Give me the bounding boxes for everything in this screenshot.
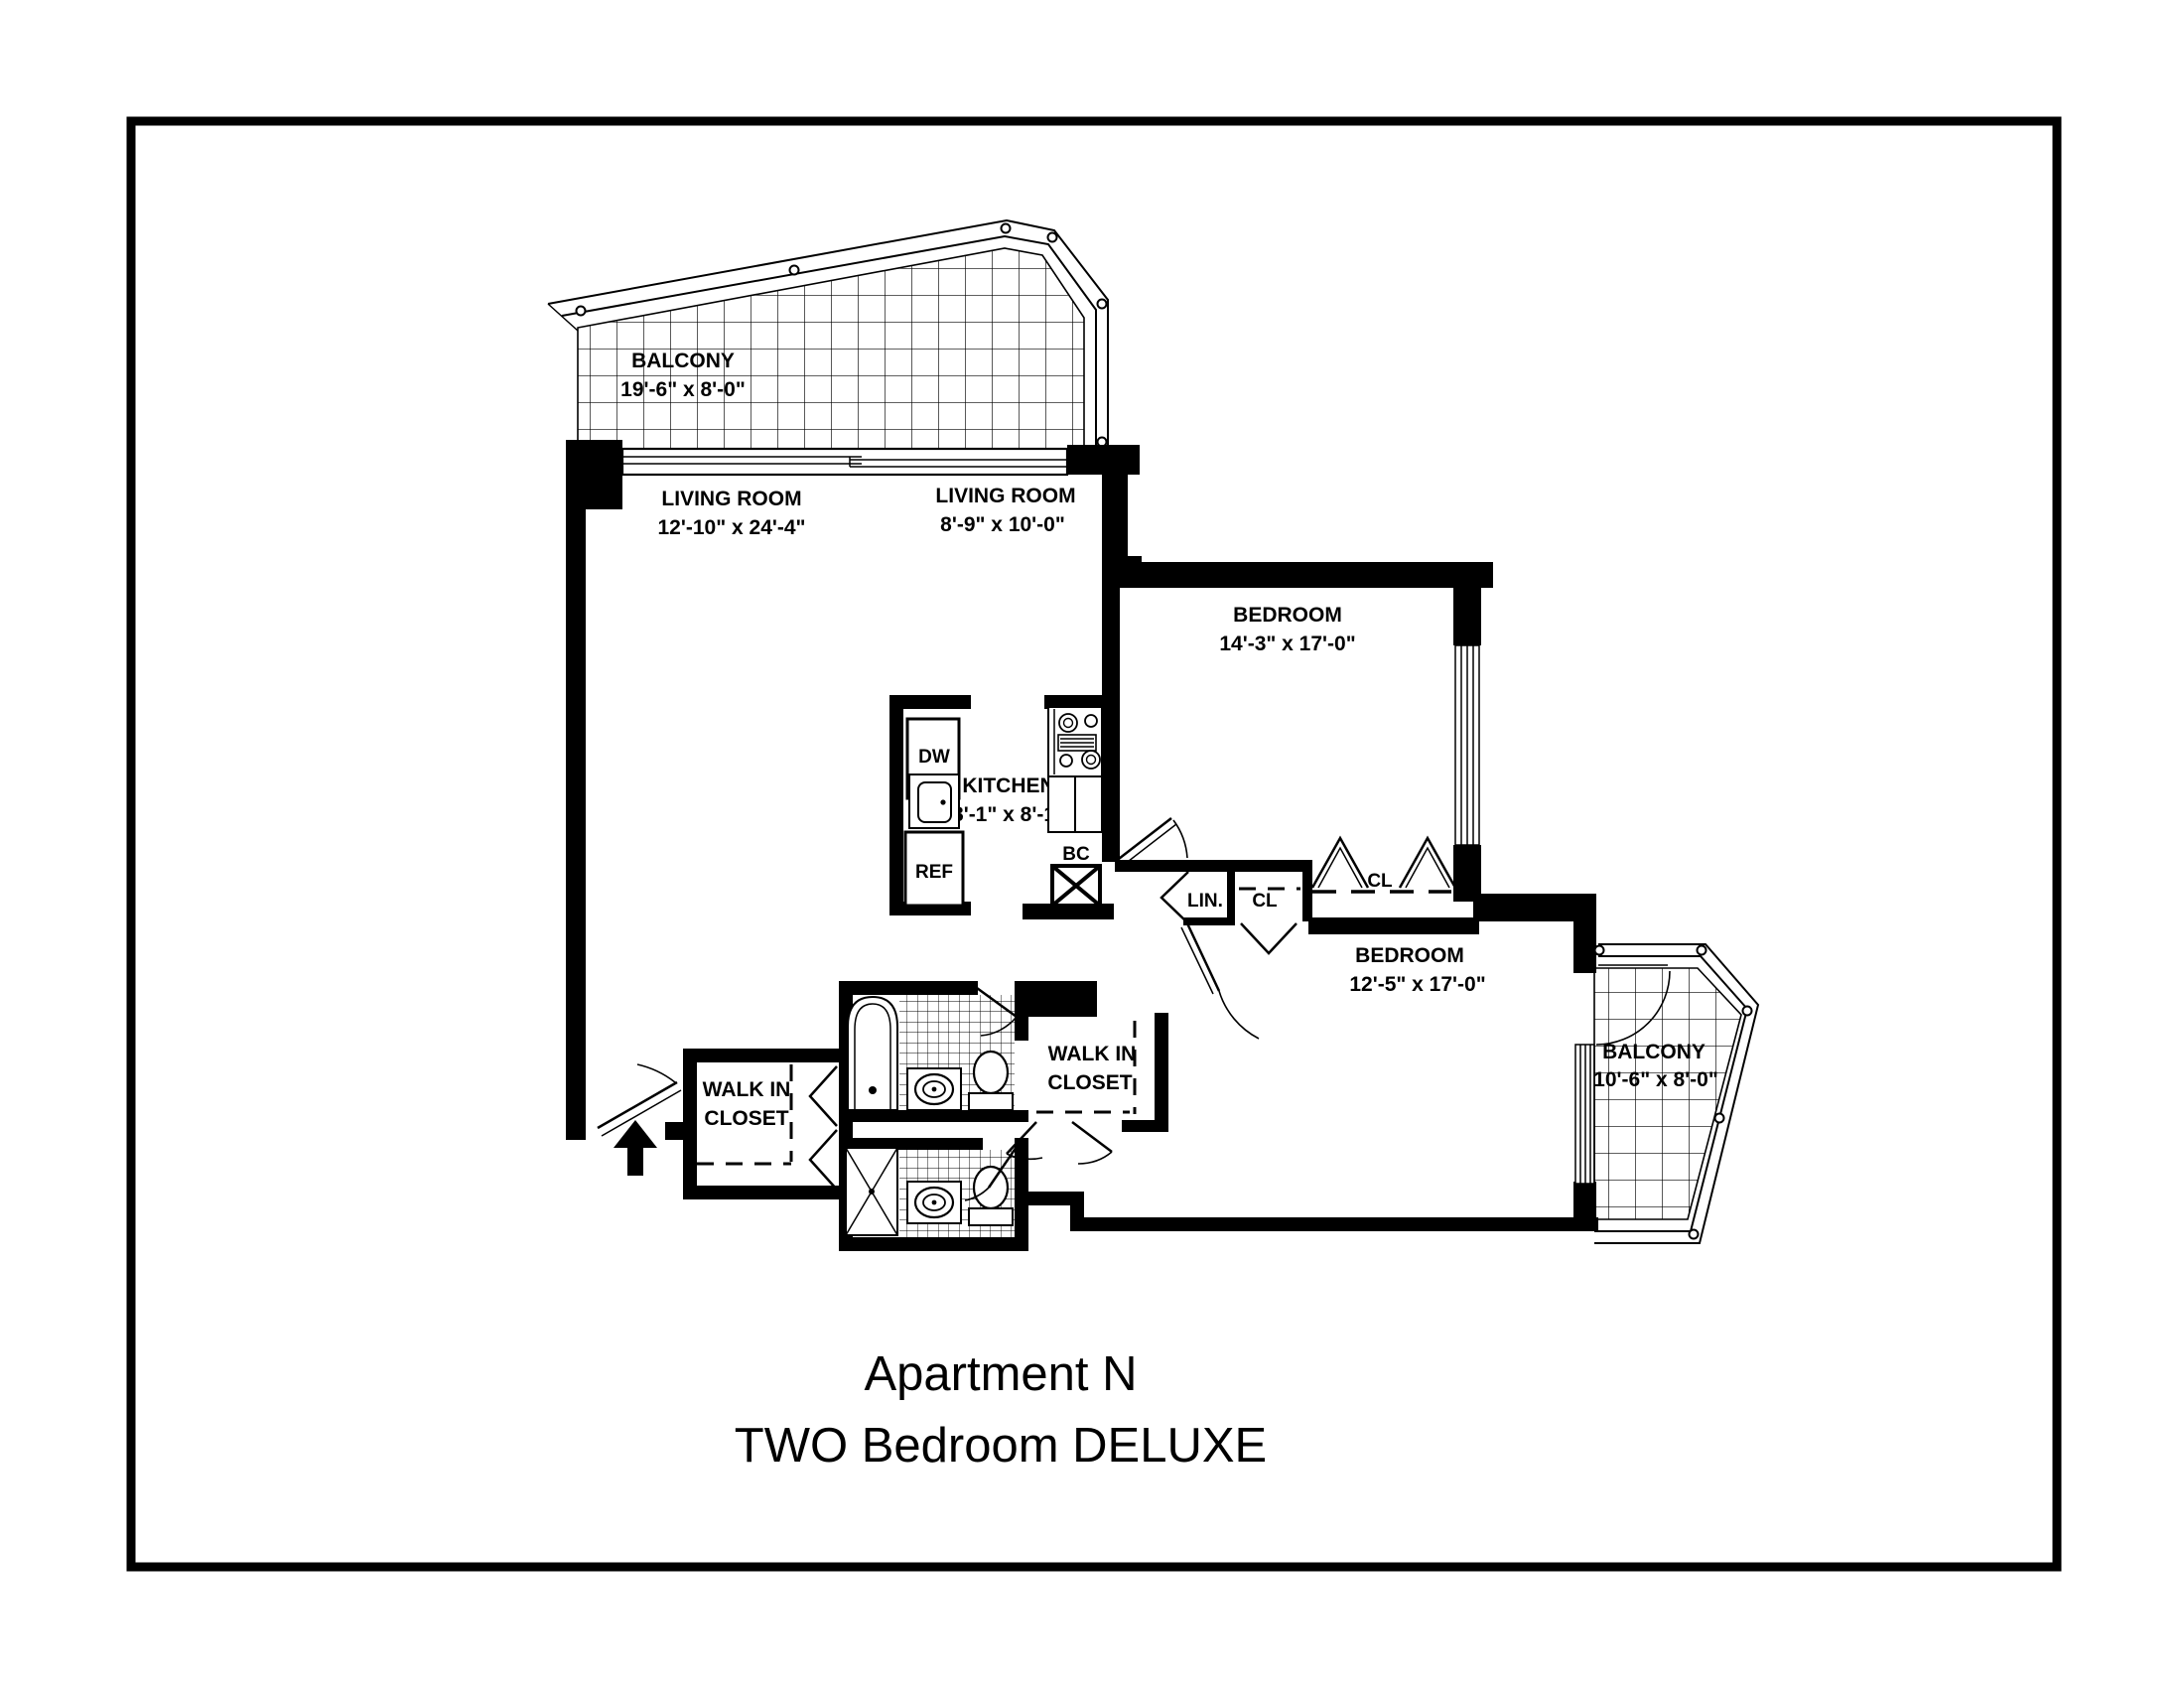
hall-door-leaf bbox=[1115, 818, 1171, 862]
entry-arrow-icon bbox=[614, 1120, 657, 1176]
bedroom-top-name: BEDROOM bbox=[1233, 604, 1342, 627]
shower-stall bbox=[846, 1148, 897, 1235]
balcony-top-dims: 19'-6" x 8'-0" bbox=[620, 378, 746, 401]
sink-faucet bbox=[940, 799, 945, 804]
living-alcove-dims: 8'-9" x 10'-0" bbox=[940, 513, 1065, 536]
balcony-bottom-floor bbox=[1594, 968, 1741, 1219]
balcony-top: BALCONY 19'-6" x 8'-0" bbox=[548, 220, 1108, 449]
living-main-name: LIVING ROOM bbox=[661, 488, 801, 510]
hall-closet-bifold-icon bbox=[1241, 923, 1297, 953]
hall-doors bbox=[1115, 818, 1259, 1039]
base-cabinet-label: BC bbox=[1062, 844, 1090, 865]
refrigerator-label: REF bbox=[915, 862, 953, 883]
walkin-entry-line2: CLOSET bbox=[704, 1107, 788, 1130]
plan-title-line2: TWO Bedroom DELUXE bbox=[735, 1419, 1267, 1473]
dishwasher-label: DW bbox=[918, 747, 950, 768]
bedroom-bottom-name: BEDROOM bbox=[1355, 944, 1464, 967]
hall-closet-label: CL bbox=[1252, 891, 1278, 912]
toilet-bowl bbox=[974, 1167, 1008, 1208]
bedroom-bottom: BEDROOM 12'-5" x 17'-0" bbox=[1349, 944, 1485, 996]
hall-door-swing bbox=[1173, 820, 1187, 858]
walkin-bedroom-door-leaf bbox=[1072, 1122, 1112, 1152]
living-alcove-name: LIVING ROOM bbox=[935, 485, 1075, 507]
walkin-entry-bifold-icon bbox=[810, 1130, 837, 1190]
balcony-top-floor bbox=[578, 248, 1084, 449]
entry-door-swing bbox=[637, 1064, 675, 1082]
bedroom-bottom-dims: 12'-5" x 17'-0" bbox=[1349, 973, 1485, 996]
bathroom-bottom bbox=[846, 1144, 1019, 1237]
kitchen-name: KITCHEN bbox=[962, 774, 1054, 797]
plan-title-line1: Apartment N bbox=[864, 1347, 1137, 1401]
walkin-closet-entry: WALK IN CLOSET bbox=[697, 1064, 837, 1190]
entry bbox=[598, 1064, 681, 1176]
linen-fold-door-icon bbox=[1161, 872, 1188, 923]
living-room-alcove: LIVING ROOM 8'-9" x 10'-0" bbox=[935, 485, 1075, 536]
tub-drain bbox=[869, 1086, 877, 1094]
floor-plan-drawing: BALCONY 19'-6" x 8'-0" bbox=[0, 0, 2184, 1688]
balcony-top-name: BALCONY bbox=[631, 350, 735, 372]
walkin-bedroom-line2: CLOSET bbox=[1047, 1071, 1132, 1094]
bedroom-top-window bbox=[1455, 645, 1479, 845]
bedroom-top-dims: 14'-3" x 17'-0" bbox=[1219, 633, 1355, 655]
plan-title: Apartment N TWO Bedroom DELUXE bbox=[735, 1347, 1267, 1473]
balcony-top-rail-end bbox=[548, 304, 578, 331]
bifold-door-icon bbox=[1400, 838, 1455, 888]
bedroom-bottom-door-swing bbox=[1219, 991, 1259, 1039]
bedroom-bottom-window bbox=[1575, 1045, 1594, 1184]
bedroom-bottom-door-leaf bbox=[1187, 923, 1219, 991]
bedroom-closet-label: CL bbox=[1367, 871, 1393, 892]
kitchen: KITCHEN 8'-1" x 8'-1" DW REF BC bbox=[905, 707, 1102, 906]
toilet-bowl bbox=[974, 1052, 1008, 1093]
living-room-main: LIVING ROOM 12'-10" x 24'-4" bbox=[658, 488, 806, 539]
entry-door-leaf bbox=[598, 1082, 677, 1128]
linen-closet-label: LIN. bbox=[1187, 891, 1223, 912]
walkin-bedroom-line1: WALK IN bbox=[1048, 1043, 1137, 1065]
bifold-door-icon bbox=[1312, 838, 1368, 888]
floor-plan-page: BALCONY 19'-6" x 8'-0" bbox=[0, 0, 2184, 1688]
bedroom-top: BEDROOM 14'-3" x 17'-0" CL bbox=[1219, 604, 1455, 892]
living-main-dims: 12'-10" x 24'-4" bbox=[658, 516, 806, 539]
walkin-entry-bifold-icon bbox=[810, 1066, 837, 1126]
shaft-box bbox=[1052, 866, 1100, 906]
walkin-entry-line1: WALK IN bbox=[703, 1078, 791, 1101]
balcony-bottom-name: BALCONY bbox=[1602, 1041, 1706, 1063]
toilet-tank bbox=[969, 1208, 1013, 1225]
balcony-bottom: BALCONY 10'-6" x 8'-0" bbox=[1593, 944, 1758, 1243]
bathroom-top bbox=[848, 988, 1017, 1110]
toilet-tank bbox=[969, 1093, 1013, 1110]
living-room-window-band bbox=[622, 449, 1067, 475]
balcony-bottom-dims: 10'-6" x 8'-0" bbox=[1593, 1068, 1718, 1091]
stove bbox=[1048, 707, 1102, 776]
